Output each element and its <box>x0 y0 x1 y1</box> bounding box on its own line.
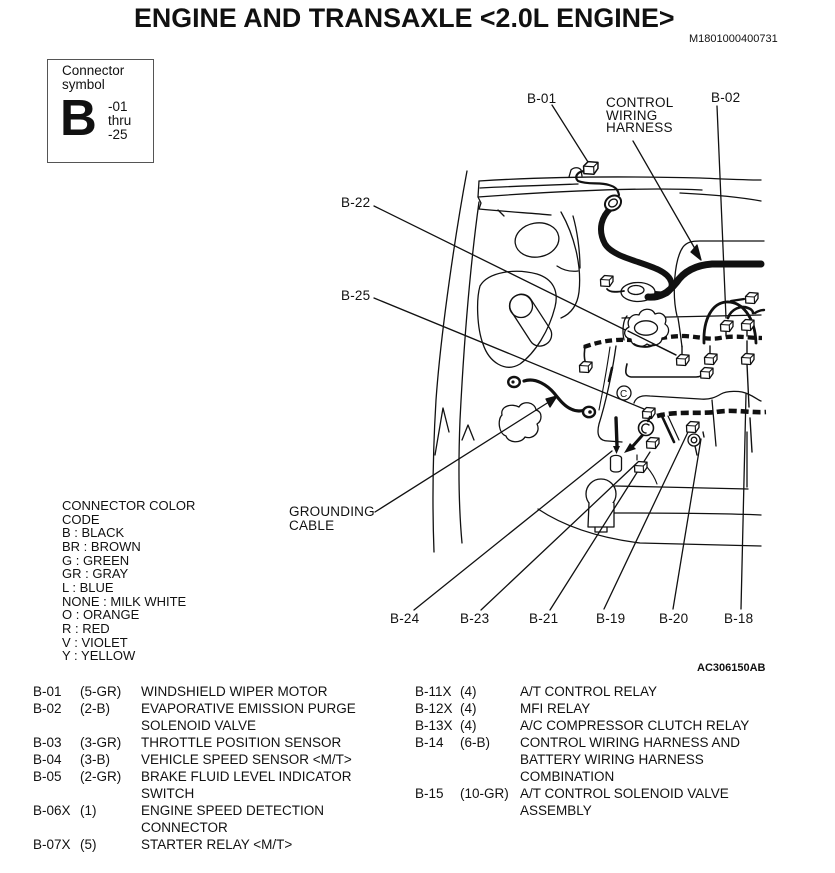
svg-text:C: C <box>620 389 627 400</box>
